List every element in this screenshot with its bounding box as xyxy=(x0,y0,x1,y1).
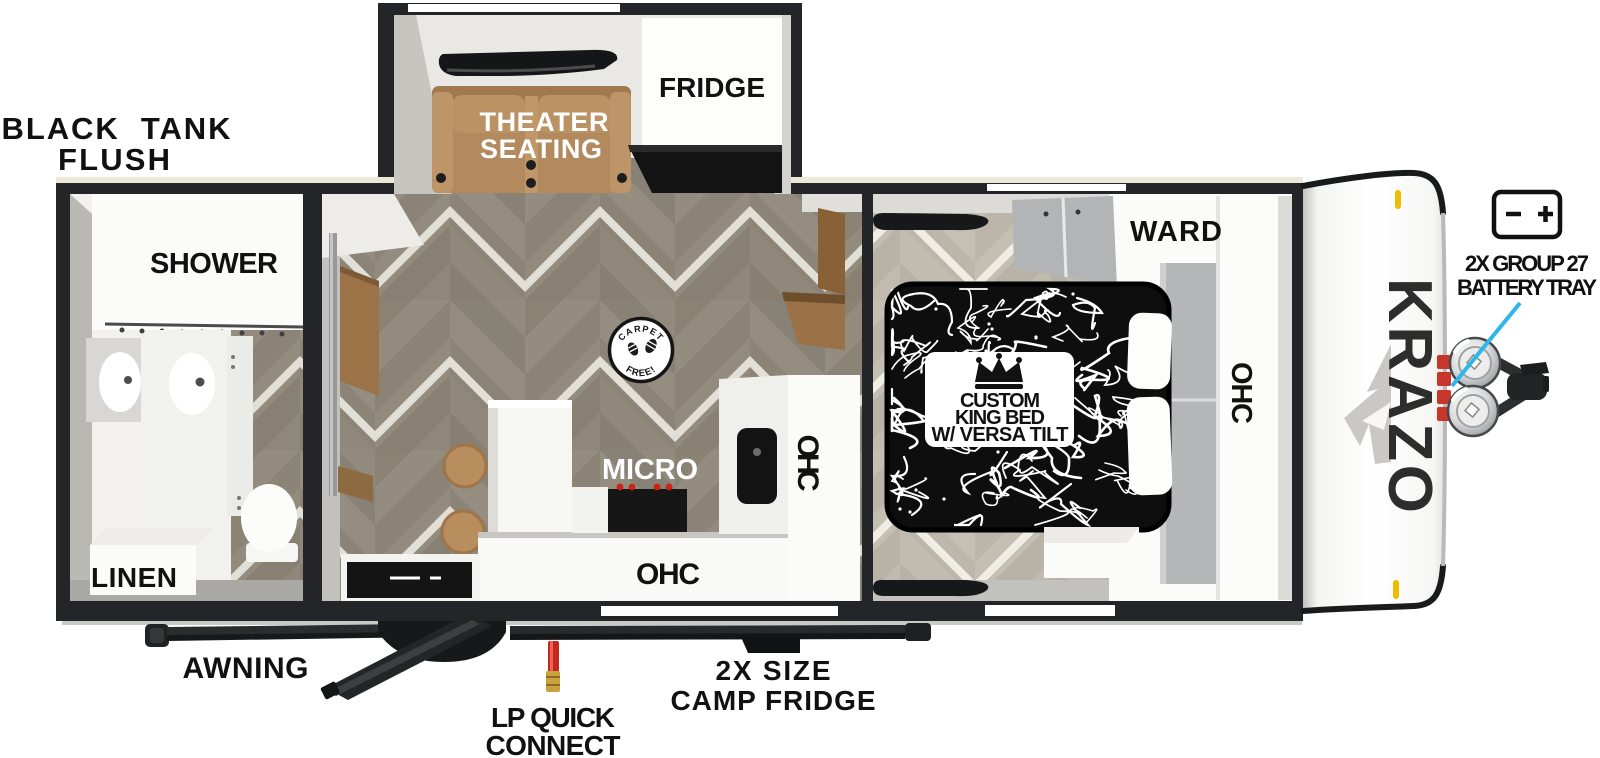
svg-text:2X GROUP 27: 2X GROUP 27 xyxy=(1465,251,1589,276)
svg-text:AWNING: AWNING xyxy=(183,652,310,685)
svg-text:OHC: OHC xyxy=(636,558,700,591)
svg-text:CAMP FRIDGE: CAMP FRIDGE xyxy=(671,685,876,716)
svg-text:SEATING: SEATING xyxy=(480,134,602,164)
svg-text:THEATER: THEATER xyxy=(480,107,609,137)
svg-text:BLACK TANK: BLACK TANK xyxy=(2,111,233,146)
svg-text:FLUSH: FLUSH xyxy=(58,142,172,177)
svg-text:KRAZO: KRAZO xyxy=(1375,278,1444,516)
svg-text:WARD: WARD xyxy=(1130,216,1222,248)
svg-text:LP QUICK: LP QUICK xyxy=(491,702,615,733)
svg-text:LINEN: LINEN xyxy=(91,562,177,593)
svg-text:W/ VERSA TILT: W/ VERSA TILT xyxy=(932,424,1069,446)
svg-text:MICRO: MICRO xyxy=(602,454,698,486)
svg-text:2X SIZE: 2X SIZE xyxy=(716,655,831,686)
svg-text:OHC: OHC xyxy=(791,435,824,492)
svg-text:CONNECT: CONNECT xyxy=(486,730,621,758)
svg-text:FRIDGE: FRIDGE xyxy=(659,72,765,103)
svg-text:SHOWER: SHOWER xyxy=(150,248,278,280)
svg-text:BATTERY TRAY: BATTERY TRAY xyxy=(1457,275,1597,300)
svg-text:OHC: OHC xyxy=(1225,362,1257,424)
